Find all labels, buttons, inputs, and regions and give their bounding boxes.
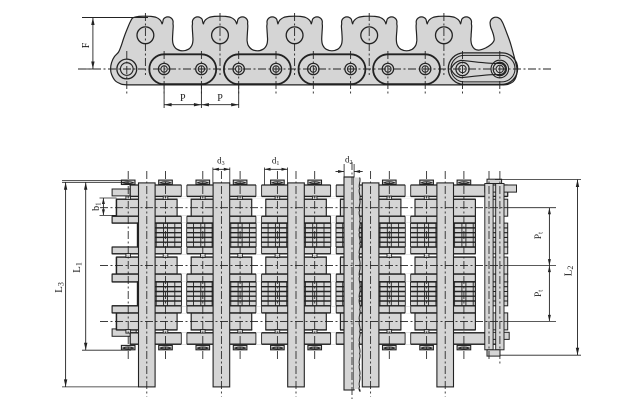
svg-text:Pt: Pt (534, 232, 545, 239)
svg-text:Pt: Pt (534, 290, 545, 297)
svg-text:P: P (217, 93, 223, 104)
svg-text:F: F (81, 42, 92, 48)
svg-text:P: P (180, 93, 186, 104)
